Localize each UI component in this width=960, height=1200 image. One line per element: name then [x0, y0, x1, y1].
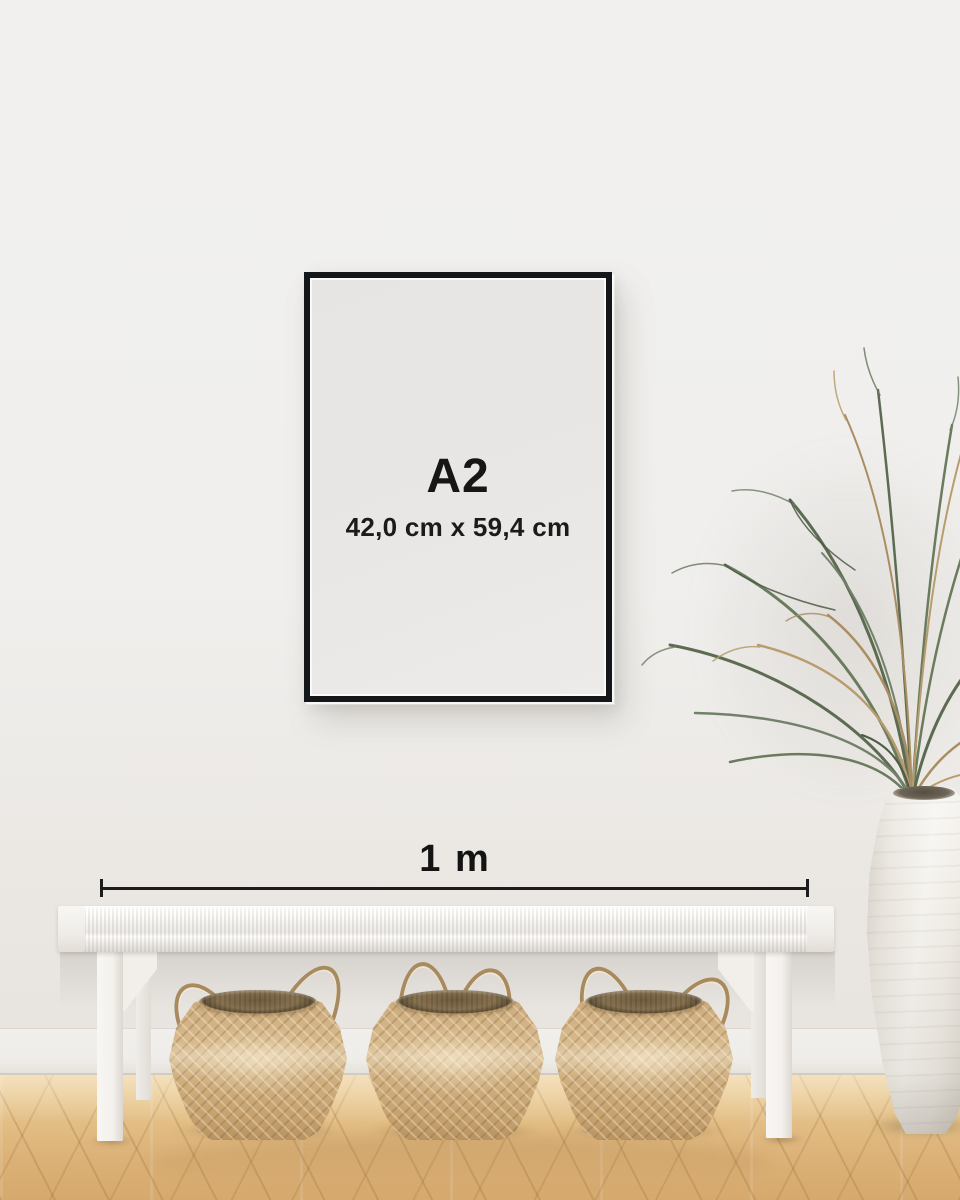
bench-leg-front-right: [766, 951, 792, 1138]
bench-leg-front-left: [97, 951, 123, 1141]
bench-end-cap-left: [58, 906, 85, 952]
basket-rim-opening: [199, 990, 317, 1014]
dried-palm-plant: [640, 315, 960, 815]
poster-format-label: A2: [426, 453, 489, 501]
ruler-line: [100, 887, 809, 890]
vase-mouth-opening: [893, 786, 955, 800]
poster: A2 42,0 cm x 59,4 cm: [312, 280, 604, 694]
seagrass-basket-middle: [360, 960, 550, 1140]
basket-body: [169, 1000, 347, 1140]
basket-rim-opening: [585, 990, 703, 1014]
ruler-tick-left: [100, 879, 103, 897]
ruler-tick-right: [806, 879, 809, 897]
bench-end-cap-right: [807, 906, 834, 952]
seagrass-basket-left: [163, 960, 353, 1140]
floor-reflection: [150, 1135, 770, 1190]
basket-body: [366, 1000, 544, 1140]
bench-seat: [58, 906, 834, 952]
poster-dimensions-label: 42,0 cm x 59,4 cm: [346, 514, 571, 540]
ruler-label: 1 m: [305, 840, 605, 878]
basket-rim-opening: [396, 990, 514, 1014]
poster-text-block: A2 42,0 cm x 59,4 cm: [346, 453, 571, 540]
basket-body: [555, 1000, 733, 1140]
seagrass-basket-right: [549, 960, 739, 1140]
frame-inner-edge: A2 42,0 cm x 59,4 cm: [310, 278, 606, 696]
picture-frame: A2 42,0 cm x 59,4 cm: [304, 272, 612, 702]
frame-size-guide-mockup: A2 42,0 cm x 59,4 cm 1 m: [0, 0, 960, 1200]
